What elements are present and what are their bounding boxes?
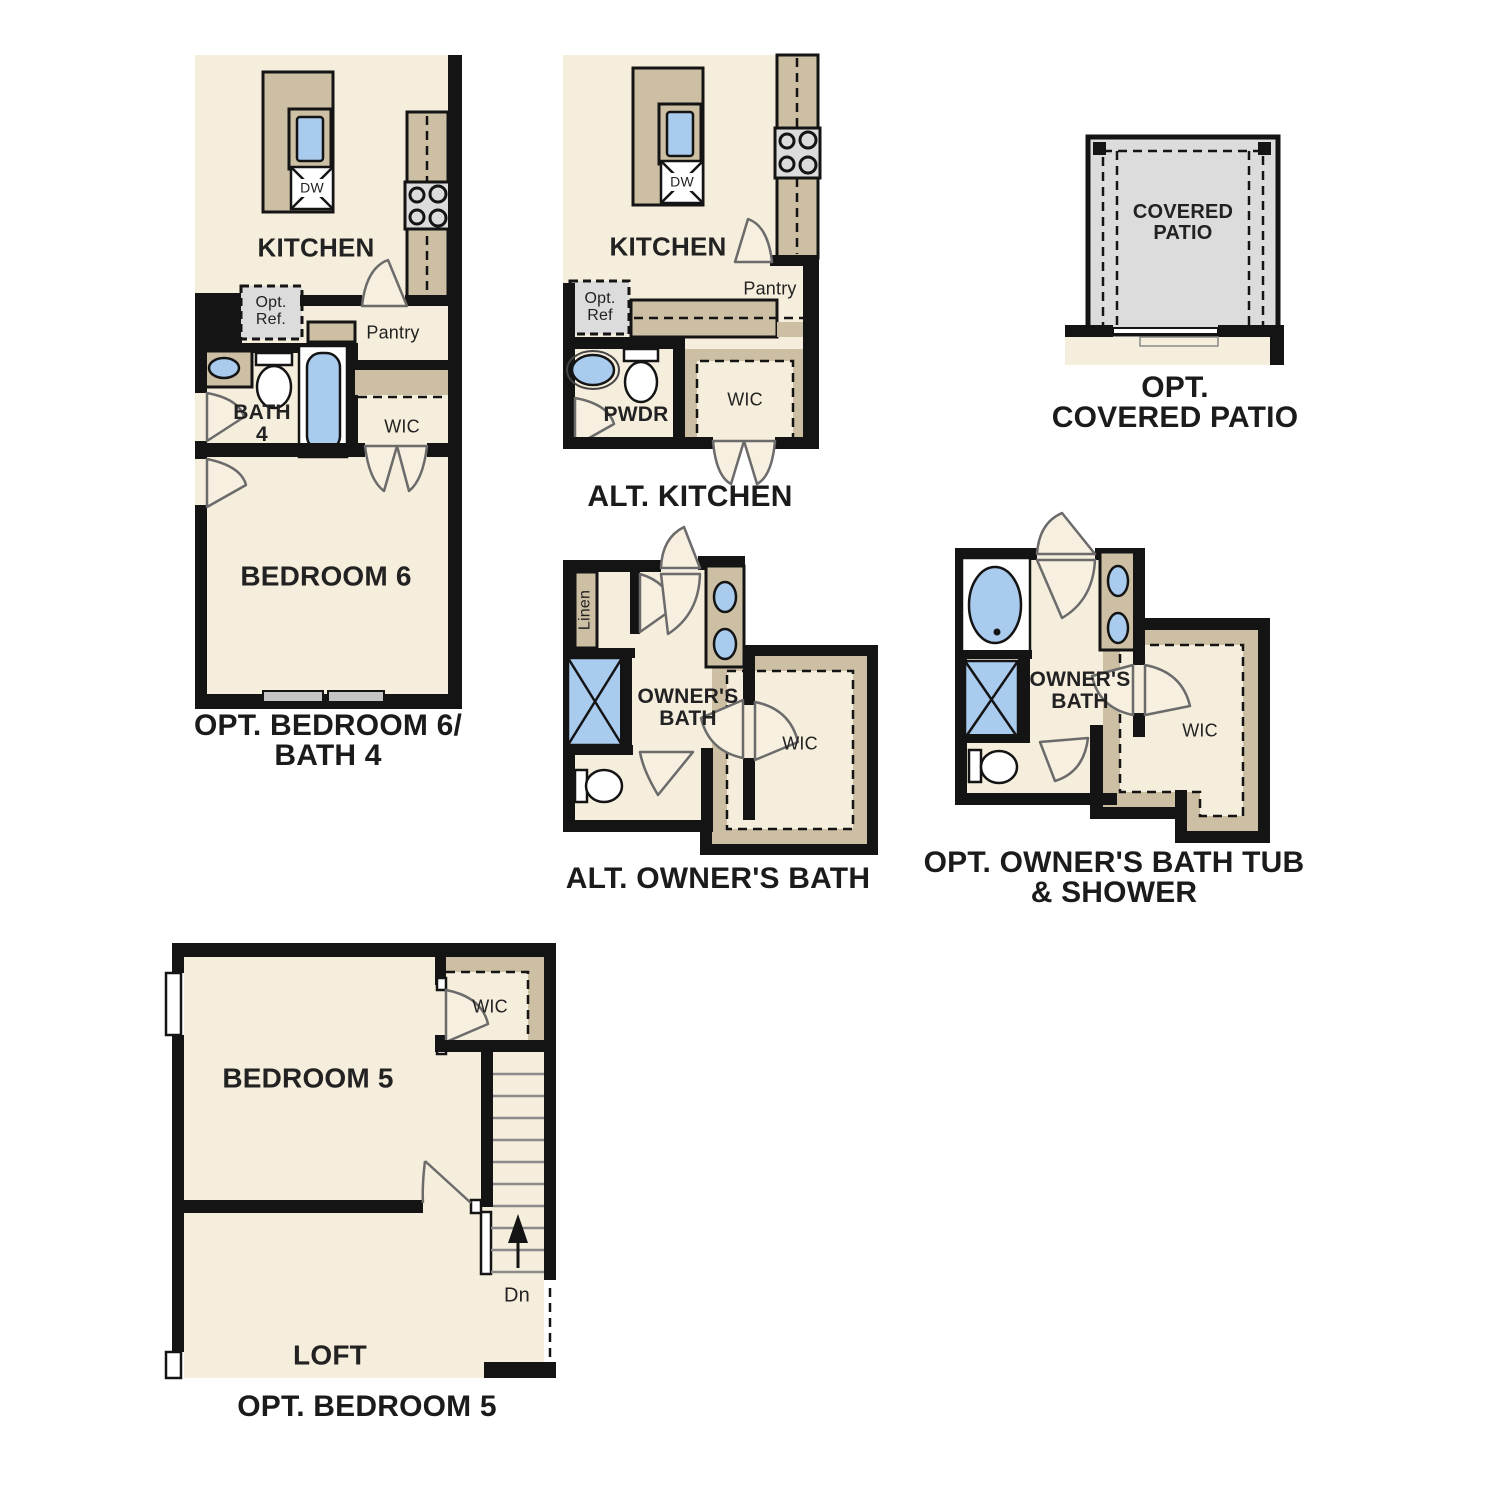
room-label-covered-patio: COVERED PATIO: [1133, 202, 1233, 244]
wall: [1218, 325, 1284, 337]
toilet-symbol: [625, 362, 657, 402]
wall: [563, 560, 661, 572]
plan-opt-covered-patio: [1065, 137, 1284, 365]
burner: [410, 210, 424, 224]
plan-alt-kitchen: [563, 55, 820, 484]
room-label-pantry: Pantry: [743, 280, 796, 299]
wall: [484, 1362, 556, 1378]
wall: [172, 943, 556, 957]
burner: [780, 157, 794, 171]
patio-post: [1093, 142, 1106, 155]
fixture-label-dw: DW: [300, 181, 324, 196]
wall: [1143, 618, 1270, 630]
fixture-label-dw: DW: [670, 175, 694, 190]
burner: [430, 210, 446, 226]
wall: [172, 1200, 423, 1213]
wall: [544, 943, 556, 1280]
wall: [743, 758, 755, 820]
toilet-tank: [969, 750, 981, 782]
room-label-owners-bath: OWNER'S BATH: [638, 686, 739, 730]
fixture-label-linen: Linen: [578, 590, 595, 630]
door-jamb: [471, 1200, 481, 1213]
island-sink: [297, 117, 323, 161]
room-label-kitchen: KITCHEN: [258, 234, 375, 261]
wall: [300, 295, 362, 306]
window-symbol: [328, 691, 384, 702]
window-symbol: [166, 973, 181, 1035]
island-sink: [667, 112, 693, 156]
wall: [867, 645, 878, 855]
door-recess: [1140, 337, 1218, 346]
patio-door: [1113, 328, 1218, 334]
sink-symbol: [1108, 566, 1128, 596]
window-symbol: [166, 1352, 181, 1378]
wall: [563, 337, 685, 349]
counter-stub: [308, 322, 355, 342]
tub-symbol: [307, 353, 340, 450]
plan-caption-opt-bedroom6-bath4: OPT. BEDROOM 6/ BATH 4: [194, 711, 462, 771]
door-swing-entry: [661, 527, 700, 568]
wall: [563, 745, 633, 755]
room-label-wic: WIC: [472, 998, 508, 1017]
door-jamb: [481, 1212, 491, 1274]
wall: [1065, 325, 1113, 337]
window-symbol: [263, 691, 323, 702]
plan-caption-opt-bedroom5: OPT. BEDROOM 5: [237, 1392, 497, 1422]
door-swing-wic: [744, 441, 775, 484]
wall: [775, 437, 819, 449]
wall: [803, 258, 819, 448]
wall: [172, 957, 184, 973]
wall: [563, 437, 713, 449]
burner: [430, 186, 446, 202]
toilet-tank: [624, 349, 658, 361]
room-label-wic: WIC: [1182, 722, 1218, 741]
sink-symbol: [209, 358, 239, 378]
room-label-wic: WIC: [782, 735, 818, 754]
toilet-symbol: [981, 751, 1017, 783]
wall: [481, 1052, 493, 1207]
room-label-pantry: Pantry: [366, 324, 419, 343]
wall: [563, 820, 713, 832]
toilet-tank: [256, 353, 292, 365]
wall: [348, 343, 358, 453]
wall: [630, 572, 640, 634]
wall: [1175, 831, 1270, 843]
wall: [405, 295, 448, 306]
wall: [1018, 652, 1030, 742]
plan-caption-alt-kitchen: ALT. KITCHEN: [587, 482, 792, 512]
wall: [700, 820, 712, 855]
burner: [780, 134, 794, 148]
room-label-wic: WIC: [727, 391, 763, 410]
wall: [435, 1040, 556, 1052]
room-label-bedroom6: BEDROOM 6: [240, 561, 411, 590]
wall: [1133, 548, 1145, 665]
wall: [172, 1035, 184, 1352]
wall: [1133, 713, 1145, 737]
wall: [1090, 725, 1103, 807]
door-swing-wic: [713, 441, 744, 484]
wall: [1103, 807, 1187, 819]
door-swing-entry: [1037, 513, 1095, 554]
wall: [743, 645, 878, 656]
wall: [448, 55, 462, 709]
wall: [673, 337, 685, 449]
floor-plan-options-sheet: KITCHEN DW Opt. Ref. Pantry BATH 4 WIC B…: [0, 0, 1500, 1500]
burner: [800, 157, 816, 173]
wall: [427, 443, 448, 457]
wall: [355, 360, 448, 370]
sink-symbol: [714, 582, 736, 612]
wall: [620, 655, 632, 755]
room-label-loft: LOFT: [293, 1340, 367, 1369]
wall: [195, 293, 242, 345]
room-label-wic: WIC: [384, 418, 420, 437]
wall: [195, 441, 207, 459]
sink-symbol: [714, 629, 736, 659]
room-label-bedroom5: BEDROOM 5: [222, 1063, 393, 1092]
sink-symbol: [572, 355, 614, 385]
tub-drain: [994, 629, 1001, 636]
burner: [800, 132, 816, 148]
patio-post: [1258, 142, 1271, 155]
wall: [195, 505, 207, 709]
wall: [1258, 618, 1270, 843]
plan-caption-opt-owners-bath-tub-shower: OPT. OWNER'S BATH TUB & SHOWER: [924, 848, 1305, 908]
plan-caption-opt-covered-patio: OPT. COVERED PATIO: [1052, 373, 1299, 433]
wall: [743, 645, 755, 705]
burner: [410, 188, 424, 202]
door-jamb: [437, 978, 446, 990]
toilet-symbol: [586, 770, 622, 802]
wall: [1270, 337, 1284, 365]
stairs-label-dn: Dn: [504, 1286, 530, 1307]
room-label-kitchen: KITCHEN: [610, 233, 727, 260]
wall: [700, 844, 878, 855]
room-label-owners-bath: OWNER'S BATH: [1030, 669, 1131, 713]
room-label-pwdr: PWDR: [604, 404, 669, 426]
room-label-bath4: BATH 4: [233, 402, 291, 446]
wall: [701, 748, 713, 832]
plan-caption-alt-owners-bath: ALT. OWNER'S BATH: [566, 864, 870, 894]
fixture-label-opt-ref: Opt. Ref.: [255, 295, 286, 329]
wall: [195, 340, 207, 393]
plan-opt-bedroom6-bath4: [195, 55, 462, 709]
fixture-label-opt-ref: Opt. Ref: [584, 291, 615, 325]
wall: [955, 734, 1030, 743]
closet-shelf: [355, 370, 448, 395]
sink-symbol: [1108, 613, 1128, 643]
